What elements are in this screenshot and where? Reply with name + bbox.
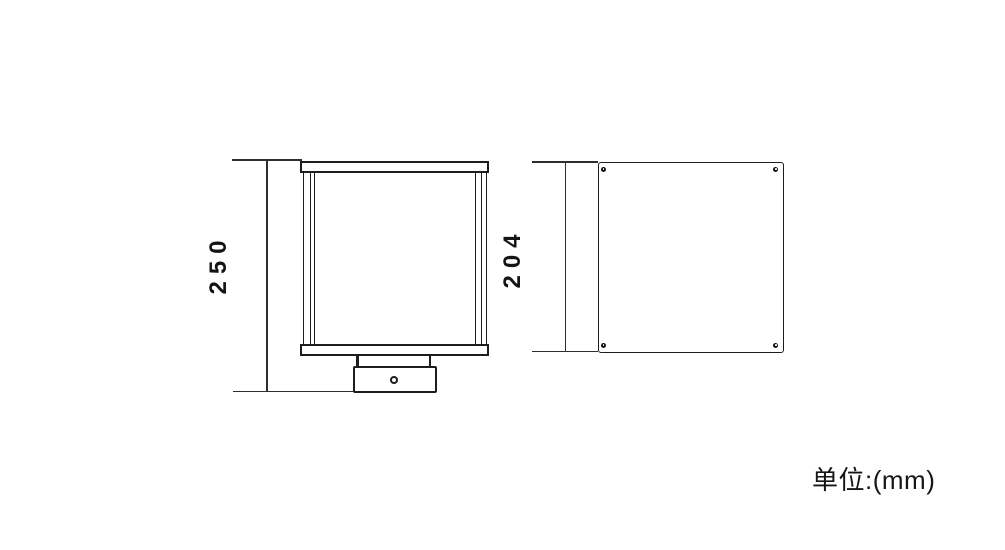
lamp-neck-right-line <box>429 355 432 367</box>
side-extension-line-bottom <box>532 351 598 352</box>
drawing-canvas: 250 204 单位:(mm) <box>0 0 1005 550</box>
panel-screw-bottom-left-icon <box>601 343 606 348</box>
lamp-right-post-inner-line <box>481 173 483 345</box>
lamp-neck-left-line <box>356 355 359 367</box>
front-dimension-line <box>266 159 267 392</box>
side-dimension-label: 204 <box>501 227 525 288</box>
side-dimension-line <box>565 161 566 352</box>
lamp-bottom-cap <box>300 344 489 356</box>
lamp-top-cap <box>300 161 489 173</box>
unit-note: 单位:(mm) <box>812 460 935 497</box>
front-dimension-label: 250 <box>207 233 231 294</box>
panel-screw-top-left-icon <box>601 167 606 172</box>
front-extension-line-bottom <box>233 391 354 392</box>
rear-panel <box>598 162 785 353</box>
lamp-left-post-inner-line <box>310 173 312 345</box>
panel-screw-bottom-right-icon <box>773 343 778 348</box>
panel-screw-top-right-icon <box>773 167 778 172</box>
base-screw-icon <box>390 376 398 384</box>
lamp-glass-panel <box>315 173 475 345</box>
lamp-left-post <box>303 172 315 345</box>
